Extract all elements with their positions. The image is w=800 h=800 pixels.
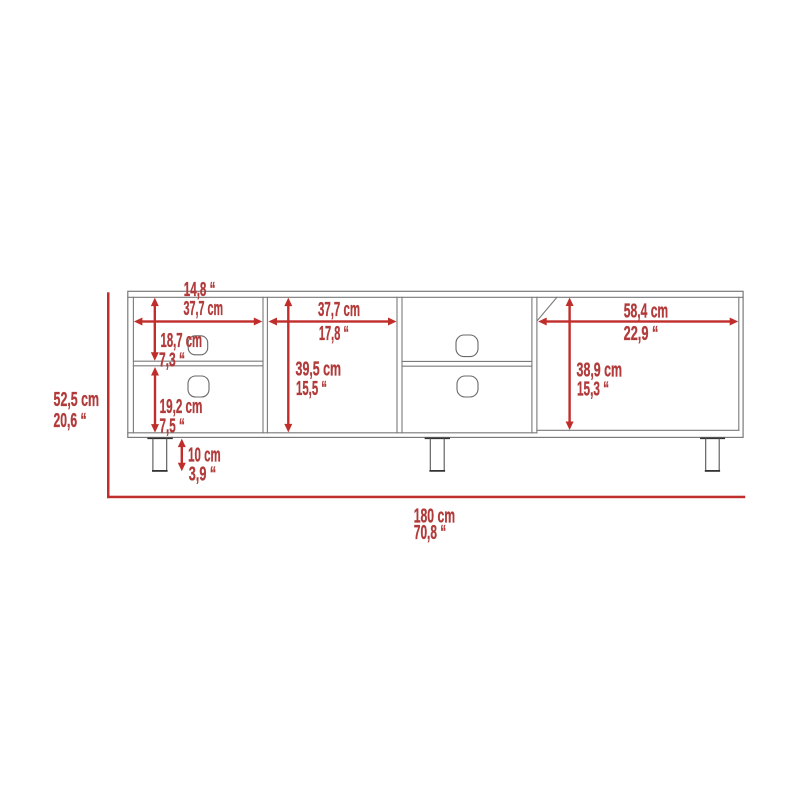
svg-text:15,5 “: 15,5 “ (296, 378, 327, 400)
svg-text:7,5 “: 7,5 “ (160, 416, 185, 438)
svg-text:70,8 “: 70,8 “ (414, 522, 446, 544)
svg-text:15,3 “: 15,3 “ (577, 379, 609, 401)
svg-text:22,9 “: 22,9 “ (624, 323, 659, 345)
svg-text:17,8 “: 17,8 “ (319, 323, 349, 345)
svg-text:37,7 cm: 37,7 cm (318, 299, 360, 321)
svg-text:52,5 cm: 52,5 cm (54, 389, 100, 411)
svg-text:58,4 cm: 58,4 cm (624, 301, 668, 323)
svg-text:20,6 “: 20,6 “ (54, 410, 87, 432)
svg-text:37,7 cm: 37,7 cm (184, 298, 224, 320)
svg-text:7,3 “: 7,3 “ (159, 349, 185, 371)
svg-text:3,9 “: 3,9 “ (189, 464, 217, 486)
